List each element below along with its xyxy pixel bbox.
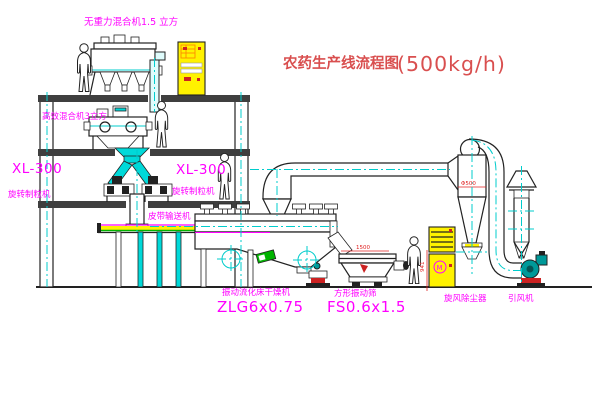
process-flow-drawing: M xyxy=(0,0,600,403)
fluid-bed-dryer xyxy=(195,204,352,287)
dim-sieve-width: 1500 xyxy=(356,245,370,251)
label-dryer-name: 振动流化床干燥机 xyxy=(222,287,291,298)
conveyor-leg xyxy=(116,232,121,287)
floor-slab xyxy=(150,149,250,156)
label-belt-conveyor: 皮带输送机 xyxy=(148,211,191,222)
floor-slab xyxy=(148,201,250,208)
svg-text:M: M xyxy=(437,264,443,272)
label-granulator-left-name: 旋转制粒机 xyxy=(8,189,51,200)
label-sieve-model: FS0.6x1.5 xyxy=(327,298,406,316)
diagram-canvas: M xyxy=(0,0,600,403)
label-granulator-right-model: XL-300 xyxy=(176,162,226,178)
dim-sieve-height: 941 xyxy=(420,262,426,273)
cyclone-inlet-diffuser xyxy=(448,156,458,190)
worker-figure xyxy=(78,44,91,92)
dim-cyclone-diameter: Φ500 xyxy=(461,181,476,187)
floor-slab xyxy=(38,201,126,208)
worker-figure xyxy=(408,237,421,284)
dryer-leg xyxy=(248,250,253,287)
belt-conveyor xyxy=(97,223,203,287)
label-granulator-left-model: XL-300 xyxy=(12,161,62,177)
label-cyclone-name: 旋风除尘器 xyxy=(444,293,487,304)
control-cabinet-2: M xyxy=(429,227,455,287)
label-fan-name: 引风机 xyxy=(508,293,534,304)
label-granulator-right-name: 旋转制粒机 xyxy=(172,186,215,197)
floor-slab xyxy=(38,95,148,102)
conveyor-leg xyxy=(157,232,162,287)
label-mixer-3m3: 高效混合机3立方 xyxy=(42,111,107,122)
diagram-title: 农药生产线流程图 xyxy=(282,54,399,72)
conveyor-leg xyxy=(138,232,143,287)
conveyor-leg xyxy=(176,232,181,287)
control-cabinet-1 xyxy=(178,42,205,95)
label-gravity-mixer: 无重力混合机1.5 立方 xyxy=(84,16,178,28)
floor-slab xyxy=(161,95,250,102)
floor-slab xyxy=(38,149,115,156)
label-dryer-model: ZLG6x0.75 xyxy=(217,298,304,316)
sieve-spout xyxy=(394,261,404,270)
diagram-title-capacity: (500kg/h) xyxy=(397,52,506,76)
dryer-leg xyxy=(201,249,206,287)
discharge-pipe xyxy=(155,52,165,60)
